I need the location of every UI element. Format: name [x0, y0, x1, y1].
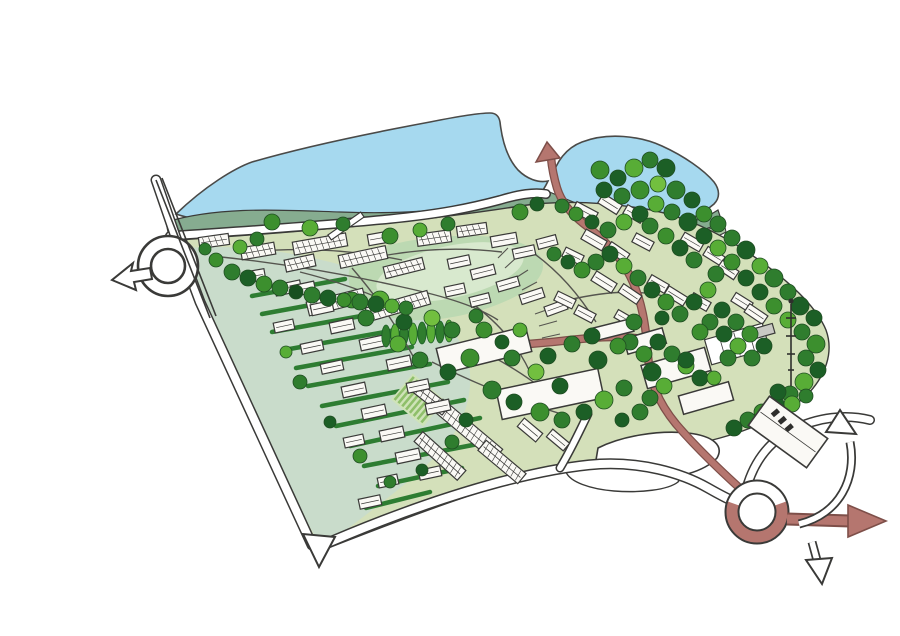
tree — [506, 394, 522, 410]
tree — [664, 346, 680, 362]
tree — [780, 284, 796, 300]
tree — [293, 375, 307, 389]
tree — [616, 380, 632, 396]
tree — [630, 270, 646, 286]
tree — [648, 196, 664, 212]
tree — [700, 282, 716, 298]
tree — [742, 326, 758, 342]
tree — [352, 294, 368, 310]
tree — [412, 352, 428, 368]
tree — [626, 314, 642, 330]
tree — [655, 311, 669, 325]
tree — [600, 222, 616, 238]
tree — [765, 269, 783, 287]
tree — [616, 214, 632, 230]
tree — [384, 476, 396, 488]
tree — [591, 161, 609, 179]
tree — [530, 197, 544, 211]
boundary-road-arrow-icon — [303, 534, 335, 567]
tree — [589, 351, 607, 369]
tree — [224, 264, 240, 280]
tree — [483, 381, 501, 399]
tree — [642, 218, 658, 234]
tree — [710, 240, 726, 256]
tree — [240, 270, 256, 286]
masterplan-illustration — [0, 0, 900, 636]
tree — [576, 404, 592, 420]
tree — [720, 350, 736, 366]
tree — [304, 287, 320, 303]
tree — [585, 215, 599, 229]
tree — [390, 336, 406, 352]
tree — [476, 322, 492, 338]
tree — [632, 404, 648, 420]
tree — [650, 176, 666, 192]
tree — [614, 188, 630, 204]
tree — [588, 254, 604, 270]
tree — [528, 364, 544, 380]
tree — [199, 243, 211, 255]
tree — [320, 290, 336, 306]
tree — [791, 297, 809, 315]
tree — [569, 207, 583, 221]
tree — [696, 228, 712, 244]
tree — [714, 302, 730, 318]
tree — [336, 217, 350, 231]
tree — [554, 412, 570, 428]
tree — [724, 230, 740, 246]
tree — [353, 449, 367, 463]
poplar-tree — [382, 325, 390, 347]
tree — [696, 206, 712, 222]
tree — [766, 298, 782, 314]
tree — [445, 435, 459, 449]
tree — [233, 240, 247, 254]
tree — [643, 363, 661, 381]
tree — [658, 294, 674, 310]
tree — [552, 378, 568, 394]
tree — [441, 217, 455, 231]
tree — [710, 216, 726, 232]
tree — [642, 390, 658, 406]
tree — [631, 181, 649, 199]
tree — [679, 213, 697, 231]
tree — [708, 266, 724, 282]
tree — [678, 352, 694, 368]
tree — [495, 335, 509, 349]
tree — [756, 338, 772, 354]
tree — [440, 364, 456, 380]
tree — [561, 255, 575, 269]
tree — [810, 362, 826, 378]
tree — [656, 378, 672, 394]
tree — [602, 246, 618, 262]
tree — [337, 293, 351, 307]
tree — [684, 192, 700, 208]
tree — [692, 324, 708, 340]
tree — [461, 349, 479, 367]
white-arrow-south-icon — [806, 542, 832, 584]
tree — [625, 159, 643, 177]
tree — [724, 254, 740, 270]
route-arrow-to-lake — [536, 142, 560, 162]
tree — [396, 314, 412, 330]
tree — [513, 323, 527, 337]
tree — [459, 413, 473, 427]
tree — [650, 334, 666, 350]
tree — [615, 413, 629, 427]
tree — [707, 371, 721, 385]
tree — [264, 214, 280, 230]
tree — [547, 247, 561, 261]
tree — [752, 258, 768, 274]
tree — [564, 336, 580, 352]
tree — [416, 464, 428, 476]
tree — [780, 312, 796, 328]
tree — [610, 170, 626, 186]
poplar-tree — [418, 322, 426, 344]
tree — [738, 270, 754, 286]
tree — [413, 223, 427, 237]
tree — [209, 253, 223, 267]
tree — [616, 258, 632, 274]
tree — [250, 232, 264, 246]
tree — [672, 240, 688, 256]
tree — [531, 403, 549, 421]
tree — [368, 296, 384, 312]
tree — [672, 306, 688, 322]
tree — [794, 324, 810, 340]
tree — [636, 346, 652, 362]
tree — [596, 182, 612, 198]
tree — [302, 220, 318, 236]
tree — [807, 335, 825, 353]
tree — [728, 314, 744, 330]
tree — [798, 350, 814, 366]
tree — [512, 204, 528, 220]
tree — [424, 310, 440, 326]
tree — [574, 262, 590, 278]
tree — [806, 310, 822, 326]
tree — [399, 301, 413, 315]
tree — [657, 159, 675, 177]
tree — [595, 391, 613, 409]
tree — [737, 241, 755, 259]
tree — [667, 181, 685, 199]
tree — [692, 370, 708, 386]
tree — [744, 350, 760, 366]
tree — [664, 204, 680, 220]
tree — [358, 310, 374, 326]
tree — [726, 420, 742, 436]
tree — [658, 228, 674, 244]
tree — [385, 299, 399, 313]
tree — [280, 346, 292, 358]
tree — [644, 282, 660, 298]
tree — [444, 322, 460, 338]
tree — [686, 294, 702, 310]
tree — [795, 373, 813, 391]
tree — [469, 309, 483, 323]
tree — [686, 252, 702, 268]
tree — [555, 199, 569, 213]
tree — [504, 350, 520, 366]
tree — [642, 152, 658, 168]
tree — [584, 328, 600, 344]
tree — [256, 276, 272, 292]
tree — [324, 416, 336, 428]
tree — [272, 280, 288, 296]
tree — [382, 228, 398, 244]
tree — [540, 348, 556, 364]
tree — [610, 338, 626, 354]
tree — [752, 284, 768, 300]
tree — [716, 326, 732, 342]
tree — [289, 285, 303, 299]
tree — [799, 389, 813, 403]
